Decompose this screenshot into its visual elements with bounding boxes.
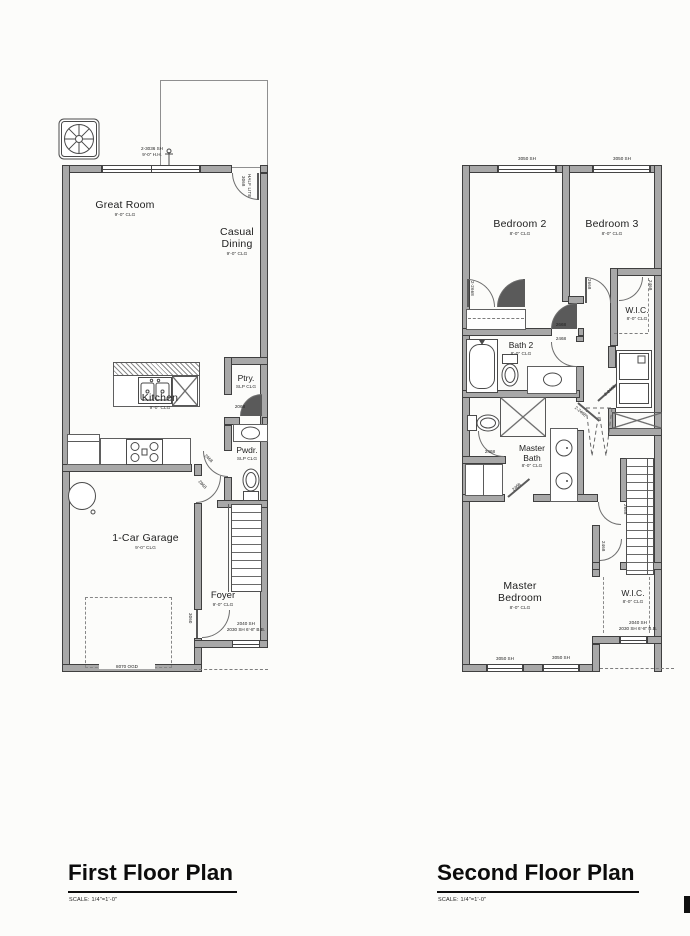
window-label: 2-3036 SH 9'-0" H.H.: [112, 146, 192, 158]
room-label-kitchen: Kitchen 9'-0" CLG: [125, 393, 195, 411]
window-symbol: [620, 636, 647, 644]
door-leaf: [196, 610, 198, 638]
room-label-great-room: Great Room 9'-0" CLG: [85, 200, 165, 218]
first-floor-scale: SCALE: 1/4"=1'-0": [69, 897, 117, 903]
wall: [592, 644, 600, 672]
window-symbol: [487, 664, 523, 672]
room-name-2: Bedroom: [478, 593, 562, 605]
wall: [608, 346, 616, 368]
window-pane-line: [233, 644, 259, 645]
door-type-label: HALF LITE: [247, 174, 252, 210]
range-icon: [126, 439, 163, 465]
sink-icon: [240, 426, 261, 440]
room-name: Great Room: [85, 200, 165, 212]
wall: [260, 165, 268, 173]
water-heater-icon: [66, 480, 100, 516]
room-label-wic-bottom: W.I.C. 8'-0" CLG: [612, 589, 654, 605]
room-ceiling: SLP CLG: [231, 457, 263, 462]
room-ceiling: 8'-0" CLG: [480, 232, 560, 237]
bathtub-icon: [466, 339, 498, 393]
door-leaf: [523, 279, 525, 307]
second-floor-scale: SCALE: 1/4"=1'-0": [438, 897, 486, 903]
closet-shelf: [466, 309, 526, 330]
room-label-master-bedroom: Master Bedroom 8'-0" CLG: [478, 581, 562, 611]
window-pane-line: [621, 640, 646, 641]
door-size-label: 3060: [188, 613, 193, 639]
door-size-label: 2468: [549, 336, 573, 342]
window-head-height: 9'-0" H.H.: [112, 152, 192, 158]
room-name: Bedroom 2: [480, 219, 560, 231]
island-counter-hatch: [113, 362, 200, 376]
room-name: Kitchen: [125, 393, 195, 405]
window-label: 2040 SH 2030 SH 6'-8" B.B.: [226, 621, 266, 633]
room-label-wic-top: W.I.C. 8'-0" CLG: [616, 306, 658, 322]
room-ceiling: 8'-0" CLG: [478, 606, 562, 611]
hvac-unit-icon: [616, 350, 652, 408]
room-label-master-bath: Master Bath 8'-0" CLG: [507, 444, 557, 469]
wall: [523, 664, 543, 672]
room-name: Casual: [207, 227, 267, 239]
wall: [200, 165, 232, 173]
room-label-bath2: Bath 2 8'-0" CLG: [496, 341, 546, 357]
wall: [608, 428, 662, 436]
closet-divider-line: [483, 464, 484, 496]
sink-icon: [555, 439, 573, 457]
room-ceiling: 8'-0" CLG: [572, 232, 652, 237]
door-size-label: 2468: [478, 449, 502, 455]
room-ceiling: 8'-0" CLG: [612, 600, 654, 605]
room-ceiling: 9'-0" CLG: [199, 603, 247, 608]
window-label: 3050 SH: [505, 156, 549, 162]
room-name: W.I.C.: [616, 306, 658, 316]
door-size-label: 2-2468: [603, 384, 617, 397]
window-label: 3050 SH: [600, 156, 644, 162]
room-name: Bath 2: [496, 341, 546, 351]
linen-shelf-icon: [612, 412, 662, 429]
door-size-label: 3068: [241, 176, 246, 206]
room-label-bedroom2: Bedroom 2 8'-0" CLG: [480, 219, 560, 237]
room-ceiling: 9'-0" CLG: [85, 213, 165, 218]
room-name: W.I.C.: [612, 589, 654, 599]
window-pane-line: [544, 668, 578, 669]
wall: [62, 165, 70, 672]
stair-edge-line: [228, 504, 229, 592]
wall: [576, 336, 584, 342]
wall: [462, 456, 506, 464]
sink-icon: [555, 472, 573, 490]
room-ceiling: 9'-0" CLG: [93, 546, 198, 551]
wall: [462, 664, 487, 672]
wall: [62, 464, 192, 472]
shower-icon: [500, 397, 546, 437]
window-symbol: [543, 664, 579, 672]
window-label: 3050 SH: [543, 655, 579, 661]
window-label: 3050 SH: [487, 656, 523, 662]
room-label-garage: 1-Car Garage 9'-0" CLG: [93, 533, 198, 551]
room-label-foyer: Foyer 9'-0" CLG: [199, 591, 247, 608]
room-name: Ptry.: [231, 374, 261, 384]
room-label-bedroom3: Bedroom 3 8'-0" CLG: [572, 219, 652, 237]
garage-door-label: 8070 OGD: [99, 664, 155, 669]
washer-dryer-space-icon: [584, 406, 614, 458]
window-symbol: [232, 640, 260, 648]
floor-plan-sheet: 3068 HALF LITE 2068 2468 2868 3060: [0, 0, 690, 936]
first-floor-title: First Floor Plan: [68, 860, 237, 893]
wall: [562, 165, 570, 302]
window-label: 2040 SH 2030 SH 6'-8" B.B.: [616, 620, 660, 632]
roof-dashed-line: [600, 668, 674, 669]
window-pane-line: [594, 169, 649, 170]
room-ceiling: SLP CLG: [231, 385, 261, 390]
window-symbol: [102, 165, 200, 173]
door-size-label: 2668: [623, 504, 628, 526]
door-leaf: [467, 279, 469, 307]
closet-rod-dashed: [468, 318, 524, 319]
room-label-casual-dining: Casual Dining 9'-0" CLG: [207, 227, 267, 257]
stair-rail-line: [647, 459, 648, 574]
door-size-label: 2068: [228, 404, 252, 410]
wall: [194, 464, 202, 476]
room-name: Master: [478, 581, 562, 593]
garage-door-dashed-area: [85, 597, 172, 668]
closet-shelf-dashed: [603, 577, 604, 633]
door-swing-arc: [598, 502, 621, 525]
door-size-label: 2668: [587, 279, 592, 303]
porch-dashed-line: [194, 669, 268, 670]
wall: [578, 328, 584, 336]
staircase: [231, 504, 262, 592]
wall: [592, 636, 620, 644]
toilet-icon: [240, 467, 262, 501]
door-leaf: [257, 173, 259, 200]
room-name: Pwdr.: [231, 446, 263, 456]
linen-closet: [465, 464, 503, 496]
window-size-2: 2030 SH 6'-8" B.B.: [226, 627, 266, 633]
room-label-pantry: Ptry. SLP CLG: [231, 374, 261, 390]
wall: [647, 636, 662, 644]
refrigerator-line: [68, 441, 99, 442]
room-ceiling: 8'-0" CLG: [496, 352, 546, 357]
edge-partial-glyph: [684, 896, 690, 913]
door-size-label: 2468: [601, 541, 606, 561]
door-swing-arc: [551, 342, 576, 367]
window-pane-line: [499, 169, 555, 170]
room-name-2: Dining: [207, 239, 267, 251]
window-pane-line: [488, 668, 522, 669]
room-name-2: Bath: [507, 454, 557, 464]
room-ceiling: 9'-0" CLG: [125, 406, 195, 411]
room-label-powder: Pwdr. SLP CLG: [231, 446, 263, 462]
second-floor-title: Second Floor Plan: [437, 860, 639, 893]
sink-icon: [542, 372, 563, 387]
wall: [592, 562, 600, 570]
room-name: Bedroom 3: [572, 219, 652, 231]
closet-shelf-dashed: [614, 333, 648, 334]
window-size-2: 2030 SH 6'-8" B.B.: [616, 626, 660, 632]
door-size-label: 2-2668: [470, 281, 475, 311]
toilet-icon: [499, 354, 521, 388]
door-swing-arc: [497, 279, 525, 307]
refrigerator-icon: [67, 434, 100, 465]
window-mullion: [151, 166, 152, 172]
room-ceiling: 8'-0" CLG: [616, 317, 658, 322]
staircase: [626, 458, 654, 575]
window-symbol: [593, 165, 650, 173]
room-name: Foyer: [199, 591, 247, 602]
room-ceiling: 9'-0" CLG: [207, 252, 267, 257]
window-symbol: [498, 165, 556, 173]
door-size-label: 2668: [549, 322, 573, 328]
room-name: 1-Car Garage: [93, 533, 198, 545]
room-ceiling: 8'-0" CLG: [507, 464, 557, 469]
condenser-fan-icon: [58, 118, 100, 160]
door-swing-arc: [619, 277, 643, 301]
